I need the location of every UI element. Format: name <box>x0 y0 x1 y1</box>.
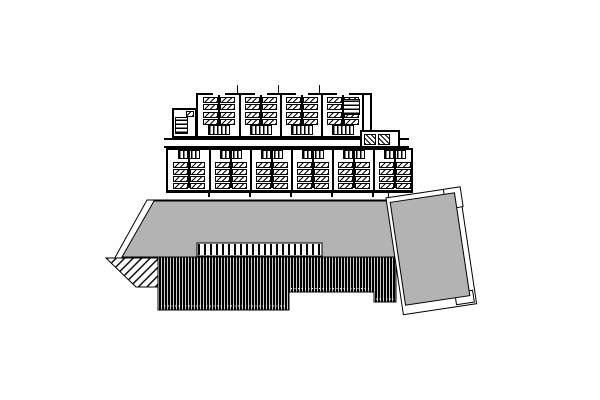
unit-plan <box>373 150 414 190</box>
bed-hatch <box>303 104 318 110</box>
bed-hatch <box>297 176 312 182</box>
wall-tick <box>372 193 374 197</box>
service-room-hatch <box>364 134 376 145</box>
bed-hatch <box>245 119 260 125</box>
bed-hatch <box>396 176 411 182</box>
bed-hatch <box>297 169 312 175</box>
unit-stair-hatch <box>250 125 272 135</box>
bed-hatch <box>286 119 301 125</box>
unit-stair-hatch <box>332 125 354 135</box>
bed-hatch <box>203 97 218 103</box>
bed-hatch <box>245 112 260 118</box>
bed-hatch <box>220 112 235 118</box>
bed-hatch <box>262 119 277 125</box>
bed-hatch <box>173 176 188 182</box>
bed-hatch <box>173 183 188 189</box>
bed-hatch <box>256 176 271 182</box>
bed-hatch <box>327 97 342 103</box>
bed-hatch <box>190 183 205 189</box>
bed-hatch <box>396 183 411 189</box>
wall-tick <box>249 193 251 197</box>
bed-hatch <box>396 169 411 175</box>
wall-tick <box>290 193 292 197</box>
bed-hatch <box>262 104 277 110</box>
bed-hatch <box>303 97 318 103</box>
bed-hatch <box>355 169 370 175</box>
wall-tick <box>331 193 333 197</box>
bed-hatch <box>220 97 235 103</box>
bed-hatch <box>273 169 288 175</box>
bed-hatch <box>286 97 301 103</box>
bed-hatch <box>379 176 394 182</box>
bed-hatch <box>314 176 329 182</box>
bed-hatch <box>273 162 288 168</box>
tilted-annex-group <box>386 187 478 315</box>
lower-unit-row <box>166 148 413 193</box>
railing-strip-bars <box>198 244 321 255</box>
bed-hatch <box>297 183 312 189</box>
bed-hatch <box>256 162 271 168</box>
roof-plan-layer <box>0 0 600 400</box>
bed-hatch <box>190 162 205 168</box>
upper-right-stair-hatch <box>343 99 360 115</box>
bed-hatch <box>232 162 247 168</box>
bed-hatch <box>379 169 394 175</box>
bed-hatch <box>190 169 205 175</box>
bed-hatch <box>338 176 353 182</box>
wall-tick <box>237 85 238 93</box>
bed-hatch <box>327 112 342 118</box>
bed-hatch <box>338 183 353 189</box>
bed-hatch <box>297 162 312 168</box>
bed-hatch <box>314 183 329 189</box>
bed-hatch <box>190 176 205 182</box>
louver-roof-hatch <box>158 257 396 310</box>
bed-hatch <box>262 97 277 103</box>
bed-hatch <box>256 169 271 175</box>
wall-tick <box>208 193 210 197</box>
service-room-hatch <box>378 134 390 145</box>
bed-hatch <box>327 104 342 110</box>
bed-hatch <box>355 162 370 168</box>
bed-hatch <box>215 162 230 168</box>
bed-hatch <box>203 104 218 110</box>
unit-stair-hatch <box>291 125 313 135</box>
unit-plan <box>250 150 291 190</box>
bed-hatch <box>273 183 288 189</box>
bed-hatch <box>245 97 260 103</box>
wall-tick <box>278 85 279 93</box>
bed-hatch <box>379 162 394 168</box>
unit-plan <box>332 150 373 190</box>
bed-hatch <box>220 119 235 125</box>
bed-hatch <box>215 169 230 175</box>
unit-plan <box>280 95 321 136</box>
bed-hatch <box>303 119 318 125</box>
bed-hatch <box>355 176 370 182</box>
bed-hatch <box>286 104 301 110</box>
bed-hatch <box>215 183 230 189</box>
bed-hatch <box>344 119 359 125</box>
right-service-annex <box>360 130 400 148</box>
bed-hatch <box>314 162 329 168</box>
bed-hatch <box>262 112 277 118</box>
bed-hatch <box>220 104 235 110</box>
bed-hatch <box>256 183 271 189</box>
stair-hatch <box>175 117 188 134</box>
unit-plan <box>239 95 280 136</box>
bed-hatch <box>232 169 247 175</box>
unit-plan <box>168 150 209 190</box>
bed-hatch <box>173 169 188 175</box>
bed-hatch <box>338 162 353 168</box>
bed-hatch <box>203 112 218 118</box>
bed-hatch <box>396 162 411 168</box>
bed-hatch <box>303 112 318 118</box>
bed-hatch <box>232 176 247 182</box>
bed-hatch <box>286 112 301 118</box>
bed-hatch <box>327 119 342 125</box>
left-stair-annex <box>172 108 197 138</box>
fan-stair-hatch <box>106 258 158 287</box>
unit-plan <box>291 150 332 190</box>
bed-hatch <box>215 176 230 182</box>
bed-hatch <box>338 169 353 175</box>
bed-hatch <box>232 183 247 189</box>
unit-plan <box>198 95 239 136</box>
bed-hatch <box>173 162 188 168</box>
bed-hatch <box>245 104 260 110</box>
site-plan-canvas <box>0 0 600 400</box>
bed-hatch <box>203 119 218 125</box>
unit-stair-hatch <box>208 125 230 135</box>
wall-tick <box>319 85 320 93</box>
bed-hatch <box>273 176 288 182</box>
bed-hatch <box>355 183 370 189</box>
bed-hatch <box>379 183 394 189</box>
bed-hatch <box>314 169 329 175</box>
unit-plan <box>209 150 250 190</box>
